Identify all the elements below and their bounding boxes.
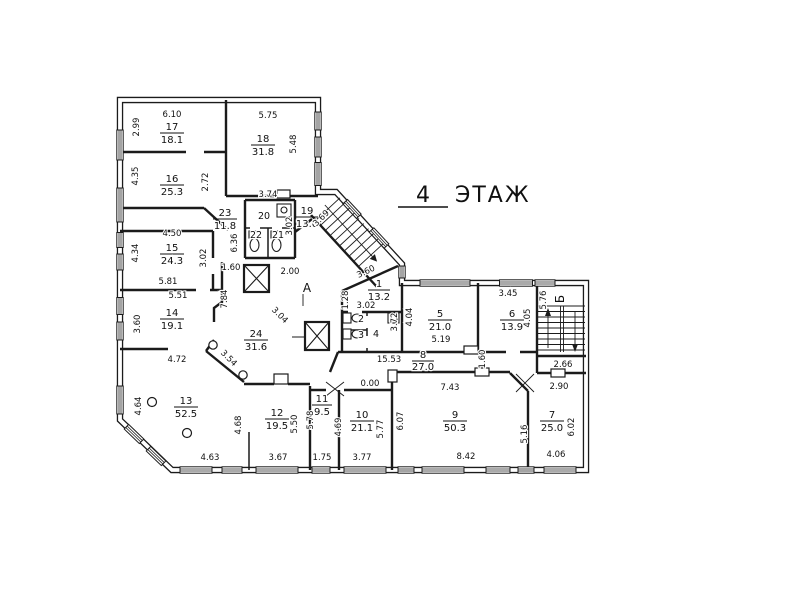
dimension: 4.68 — [234, 416, 244, 435]
door-swing-icon — [326, 374, 534, 396]
room-area: 11.8 — [214, 221, 236, 232]
dimension: 2.99 — [132, 118, 142, 137]
room-label-4: 4 — [373, 329, 379, 340]
dimension: 5.50 — [290, 415, 300, 434]
room-number: 18 — [257, 134, 270, 145]
room-number: 14 — [166, 308, 179, 319]
room-number: 23 — [219, 208, 232, 219]
dimension: 3.02 — [357, 301, 376, 311]
room-label-2: 2 — [358, 314, 364, 325]
room-number: 17 — [166, 122, 179, 133]
dimension: 15.53 — [377, 355, 401, 365]
room-area: 19.5 — [266, 421, 288, 432]
floor-plan-drawing: 1718.1 1831.8 1625.3 1524.3 2311.8 1419.… — [0, 0, 809, 614]
room-label-14: 1419.1 — [160, 308, 184, 332]
dimension: 3.67 — [269, 453, 288, 463]
room-label-8: 827.0 — [412, 350, 434, 373]
room-label-17: 1718.1 — [160, 122, 184, 146]
dimension: 4.50 — [163, 229, 182, 239]
column-icon — [209, 341, 217, 349]
room-area: 13.9 — [501, 322, 523, 333]
dimension: 7.43 — [441, 383, 460, 393]
dimension: 4.05 — [523, 309, 533, 328]
room-area: 25.0 — [541, 423, 563, 434]
dimension: 6.02 — [567, 418, 577, 437]
room-number: 8 — [420, 350, 426, 361]
floor-number: 4 — [416, 183, 432, 208]
dimension: 2.00 — [281, 267, 300, 277]
dimension: 3.74 — [259, 190, 278, 200]
dimension: 4.64 — [134, 397, 144, 416]
room-area: 50.3 — [444, 423, 466, 434]
room-number: 24 — [250, 329, 263, 340]
dimension: 4.35 — [131, 167, 141, 186]
dimension: 3.45 — [499, 289, 518, 299]
dimension: 4.04 — [405, 308, 415, 327]
room-label-6: 613.9 — [500, 309, 524, 333]
room-label-20: 20 — [258, 211, 270, 222]
dimension: 3.72 — [390, 313, 400, 332]
room-area: 19.1 — [161, 321, 183, 332]
room-label-22: 22 — [250, 230, 262, 241]
dimension: 0.00 — [361, 379, 380, 389]
room-label-7: 725.0 — [540, 410, 564, 434]
dimension: 4.69 — [334, 418, 344, 437]
room-area: 27.0 — [412, 362, 434, 373]
room-label-12: 1219.5 — [265, 408, 289, 432]
room-number: 10 — [356, 410, 369, 421]
room-area: 9.5 — [314, 407, 330, 418]
dimension: 3.02 — [285, 217, 295, 236]
plan-title: 4 ЭТАЖ — [398, 183, 531, 208]
room-label-3: 3 — [358, 330, 364, 341]
dimension: 6.36 — [230, 234, 240, 253]
stairwell-b-label: Б — [553, 295, 567, 303]
room-area: 31.6 — [245, 342, 267, 353]
room-number: 12 — [271, 408, 284, 419]
dimension: 8.42 — [457, 452, 476, 462]
room-label-15: 1524.3 — [160, 243, 184, 267]
room-label-9: 950.3 — [443, 410, 467, 434]
stairwell-a-label: А — [303, 281, 312, 295]
room-number: 9 — [452, 410, 458, 421]
room-area: 24.3 — [161, 256, 183, 267]
room-label-5: 521.0 — [428, 309, 452, 333]
dimension: 3.54 — [218, 348, 238, 368]
room-label-13: 1352.5 — [174, 396, 198, 420]
dimension: 3.77 — [353, 453, 372, 463]
dimension: 6.07 — [396, 412, 406, 431]
room-number: 16 — [166, 174, 179, 185]
room-number: 13 — [180, 396, 193, 407]
dimension: 4.63 — [201, 453, 220, 463]
column-icon — [183, 429, 192, 438]
dimension: 5.78 — [306, 411, 316, 430]
floor-plan-page: 1718.1 1831.8 1625.3 1524.3 2311.8 1419.… — [0, 0, 809, 614]
dimension: 5.75 — [259, 111, 278, 121]
room-area: 52.5 — [175, 409, 197, 420]
room-number: 1 — [376, 279, 382, 290]
dimension: 5.19 — [432, 335, 451, 345]
room-area: 18.1 — [161, 135, 183, 146]
dimension: 1.75 — [313, 453, 332, 463]
dimension: 5.51 — [169, 291, 188, 301]
room-area: 21.1 — [351, 423, 373, 434]
dimension: 5.77 — [376, 420, 386, 439]
room-label-18: 1831.8 — [251, 134, 275, 158]
column-icon — [148, 398, 157, 407]
sink-icon — [277, 204, 291, 217]
dimension: 5.81 — [159, 277, 178, 287]
dimension: 6.10 — [163, 110, 182, 120]
column-icon — [239, 371, 247, 379]
dimension: 5.48 — [289, 135, 299, 154]
dimension: 3.04 — [269, 305, 289, 325]
room-number: 19 — [301, 206, 314, 217]
dimension: 5.76 — [539, 291, 549, 310]
staircase-b — [538, 306, 585, 352]
elevator-icon — [244, 265, 269, 292]
room-label-16: 1625.3 — [160, 174, 184, 198]
dimension: 1.60 — [222, 263, 241, 273]
room-number: 5 — [437, 309, 443, 320]
dimension: 7.84 — [220, 290, 230, 309]
room-number: 11 — [316, 394, 329, 405]
dimension: 4.34 — [131, 244, 141, 263]
fixtures — [249, 204, 399, 339]
elevator-icon — [305, 322, 329, 350]
room-label-24: 2431.6 — [244, 329, 268, 353]
room-label-10: 1021.1 — [350, 410, 374, 434]
room-area: 21.0 — [429, 322, 451, 333]
dimension: 3.60 — [133, 315, 143, 334]
room-area: 25.3 — [161, 187, 183, 198]
dimension: 5.16 — [520, 425, 530, 444]
room-number: 15 — [166, 243, 179, 254]
room-label-21: 21 — [272, 230, 284, 241]
dimension: 4.72 — [168, 355, 187, 365]
floor-word: ЭТАЖ — [455, 183, 531, 208]
dimension: 3.02 — [199, 249, 209, 268]
dimension: 1.28 — [341, 291, 351, 310]
room-number: 6 — [509, 309, 515, 320]
dimension: 2.66 — [554, 360, 573, 370]
room-area: 31.8 — [252, 147, 274, 158]
room-label-1: 113.2 — [368, 279, 390, 303]
dimension: 4.06 — [547, 450, 566, 460]
dimension: 2.72 — [201, 173, 211, 192]
dimension: 1.60 — [478, 350, 488, 369]
room-number: 7 — [549, 410, 555, 421]
dimension: 2.90 — [550, 382, 569, 392]
